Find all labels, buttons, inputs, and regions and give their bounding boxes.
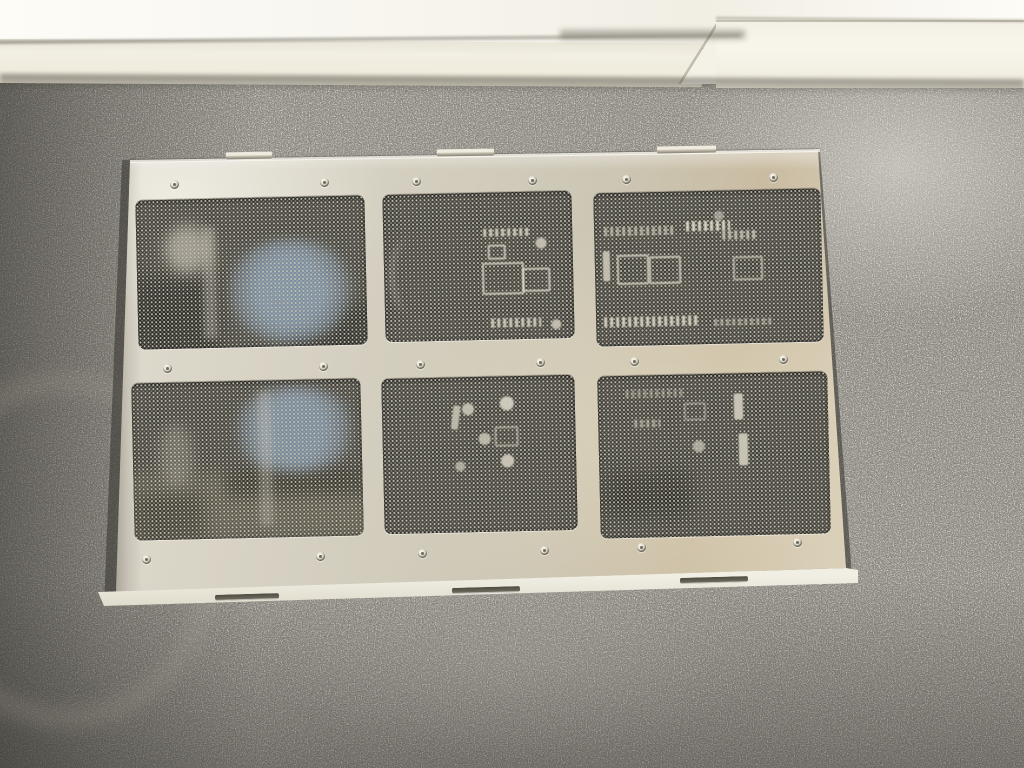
screw bbox=[630, 357, 639, 366]
vent-top-middle bbox=[382, 191, 574, 342]
screw bbox=[637, 543, 646, 552]
screw bbox=[779, 355, 788, 364]
screw bbox=[163, 364, 172, 373]
screw bbox=[540, 546, 549, 555]
mesh-perforation bbox=[381, 375, 577, 534]
tab-slot bbox=[437, 149, 494, 157]
screw bbox=[320, 178, 329, 187]
mesh-perforation bbox=[135, 195, 367, 349]
screw bbox=[536, 358, 545, 367]
screw bbox=[170, 180, 179, 189]
screw bbox=[418, 549, 427, 558]
tab-slot bbox=[657, 146, 716, 154]
screw bbox=[142, 555, 151, 564]
vent-bottom-middle bbox=[381, 375, 577, 534]
photo-canvas bbox=[0, 0, 1024, 768]
seam-smudge bbox=[560, 30, 745, 39]
mesh-perforation bbox=[597, 371, 831, 538]
vent-bottom-right bbox=[597, 371, 831, 538]
screw bbox=[793, 538, 802, 547]
screw bbox=[319, 362, 328, 371]
screw bbox=[316, 552, 325, 561]
screw bbox=[528, 176, 537, 185]
screw bbox=[769, 173, 778, 182]
mesh-perforation bbox=[382, 191, 574, 342]
mesh-perforation bbox=[593, 188, 823, 346]
vent-top-right bbox=[593, 188, 823, 346]
mesh-perforation bbox=[131, 378, 364, 540]
tab-slot bbox=[226, 152, 272, 160]
vent-bottom-left bbox=[131, 378, 364, 540]
screw bbox=[622, 175, 631, 184]
screw bbox=[416, 360, 425, 369]
screw bbox=[412, 177, 421, 186]
vent-top-left bbox=[135, 195, 367, 349]
